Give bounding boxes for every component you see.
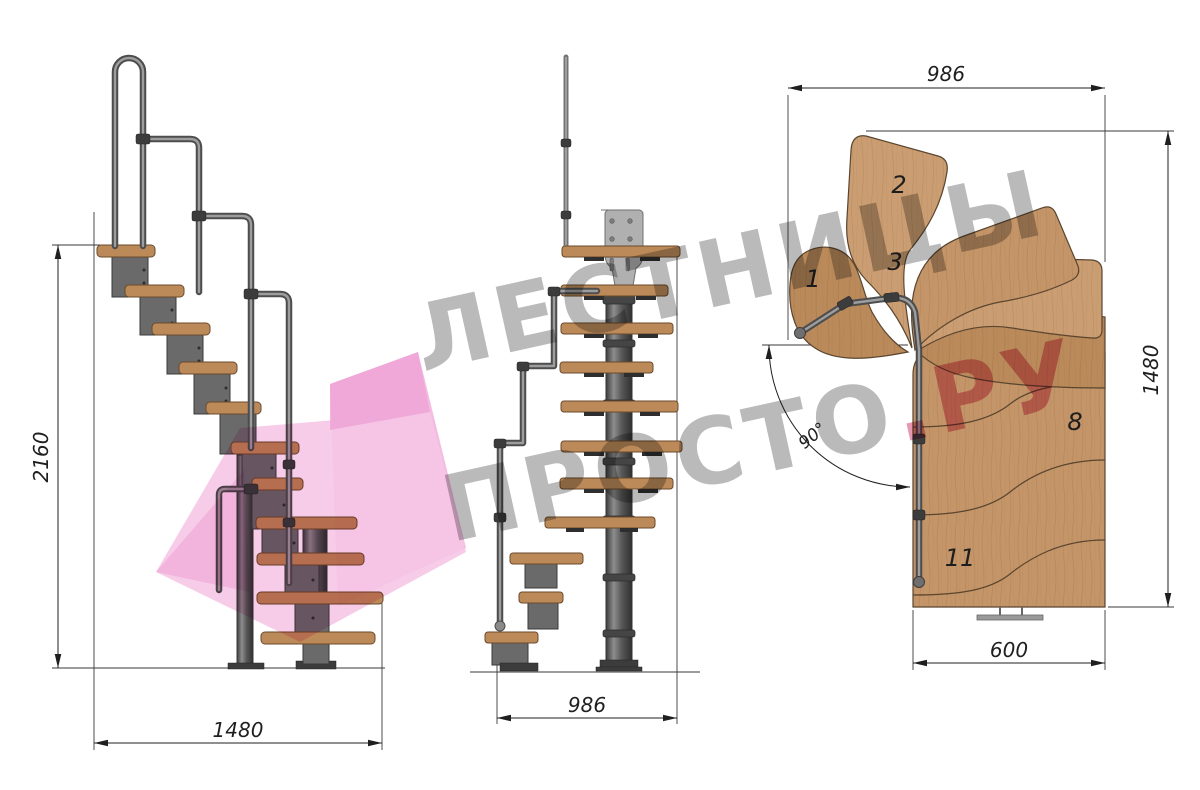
dim-986-front: 986 bbox=[568, 693, 606, 717]
front-elevation-view: 986 bbox=[470, 57, 700, 724]
side-height-dimension: 2160 bbox=[29, 245, 58, 668]
tread-number-11: 11 bbox=[945, 544, 976, 572]
plan-depth-dimension: 1480 bbox=[1139, 131, 1168, 607]
front-top-post bbox=[561, 57, 571, 247]
watermark-line2-gray: ПРОСТО bbox=[433, 359, 906, 563]
dim-986-plan: 986 bbox=[927, 62, 965, 86]
front-width-dimension: 986 bbox=[497, 693, 677, 718]
plan-width-dimension: 986 bbox=[788, 62, 1105, 88]
dim-600: 600 bbox=[990, 638, 1028, 662]
dim-1480-run: 1480 bbox=[213, 718, 264, 742]
dim-2160: 2160 bbox=[29, 432, 53, 483]
side-run-dimension: 1480 bbox=[94, 718, 382, 743]
drawing-sheet: 2160 1480 bbox=[0, 0, 1200, 790]
plan-exit-dimension: 600 bbox=[913, 638, 1105, 663]
plan-base-plate bbox=[977, 607, 1043, 620]
dim-1480-plan: 1480 bbox=[1139, 345, 1163, 396]
staircase-drawing: 2160 1480 bbox=[0, 0, 1200, 790]
